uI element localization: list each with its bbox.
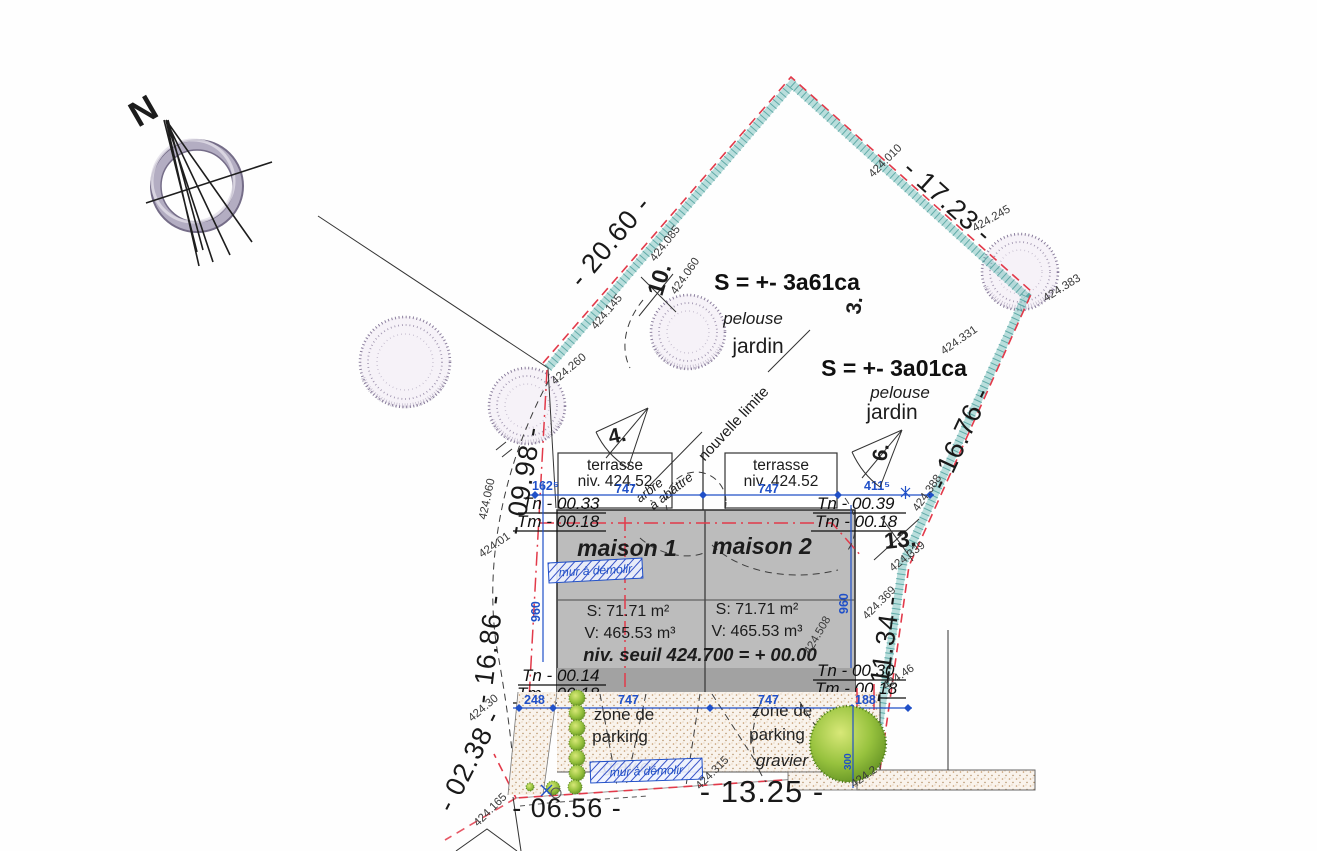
site-plan-page: N terrasse niv. 424.52 [0, 0, 1317, 851]
spot-right-upper: 424.331 [939, 324, 980, 358]
measure-top-3: 747 [758, 482, 779, 496]
house2-surface: S: 71.71 m² [716, 601, 799, 618]
dim-left-lower: - 16.86 - [467, 593, 510, 705]
parking-right-line2: parking [749, 725, 805, 744]
parcel-right-use: jardin [865, 401, 917, 424]
new-limit-label: nouvelle limite [695, 383, 772, 464]
measure-bottom-2: 747 [618, 693, 639, 707]
tree-measure: 300 [843, 753, 854, 770]
tn-bottom-left: Tn - 00.14 [522, 666, 600, 685]
site-plan-canvas: N terrasse niv. 424.52 [0, 0, 1317, 851]
parcel-left-use: jardin [731, 335, 783, 358]
measure-bottom-3: 747 [758, 693, 779, 707]
wall-to-demolish-upper: mur à démolir [548, 558, 643, 583]
spot-upper-mid-2: 424.060 [669, 256, 703, 297]
svg-text:mur à démolir: mur à démolir [609, 763, 684, 780]
threshold-level: niv. seuil 424.700 = + 00.00 [583, 644, 817, 665]
terrace-right-name: terrasse [753, 457, 809, 474]
dim-bottom-main: - 13.25 - [700, 774, 824, 809]
parcel-right-area: S = +- 3a01ca [821, 355, 967, 381]
wall-to-demolish-lower: mur à démolir [590, 758, 703, 783]
parcel-left-ground: pelouse [722, 309, 783, 328]
parcel-left-area: S = +- 3a61ca [714, 269, 860, 295]
svg-text:3.: 3. [842, 295, 867, 316]
svg-text:4.: 4. [606, 423, 628, 449]
parking-right-line3: gravier [756, 751, 809, 770]
svg-text:960: 960 [529, 601, 543, 622]
house2-name: maison 2 [712, 533, 812, 559]
dim-bottom-left: - 06.56 - [512, 793, 622, 823]
spot-left-edge: 424.060 [477, 477, 497, 520]
terrace-left-name: terrasse [587, 457, 643, 474]
parcel-right-ground: pelouse [869, 383, 930, 402]
svg-text:10.: 10. [642, 260, 676, 298]
house2-volume: V: 465.53 m³ [711, 623, 803, 640]
spot-bottom-left-165: 424.165 [472, 791, 510, 829]
house1-surface: S: 71.71 m² [587, 603, 670, 620]
house1-volume: V: 465.53 m³ [584, 625, 676, 642]
measure-top-4: 411⁵ [864, 479, 890, 493]
dim-top-left: - 20.60 - [563, 190, 656, 293]
measure-bottom-1: 248 [524, 693, 545, 707]
existing-tree-center [651, 295, 725, 369]
existing-tree-left-large [360, 317, 450, 407]
house1-name: maison 1 [577, 535, 677, 561]
north-compass: N [122, 86, 273, 266]
svg-text:960: 960 [837, 593, 851, 614]
tree-marker-3: 3. [842, 295, 867, 316]
parking-left-line2: parking [592, 727, 648, 746]
dim-top-right: - 17.23 - [897, 154, 998, 250]
terrace-right-level: niv. 424.52 [744, 473, 819, 490]
measure-top-2: 747 [615, 482, 636, 496]
tn-top-right: Tn - 00.39 [817, 494, 895, 513]
north-label: N [122, 86, 165, 135]
